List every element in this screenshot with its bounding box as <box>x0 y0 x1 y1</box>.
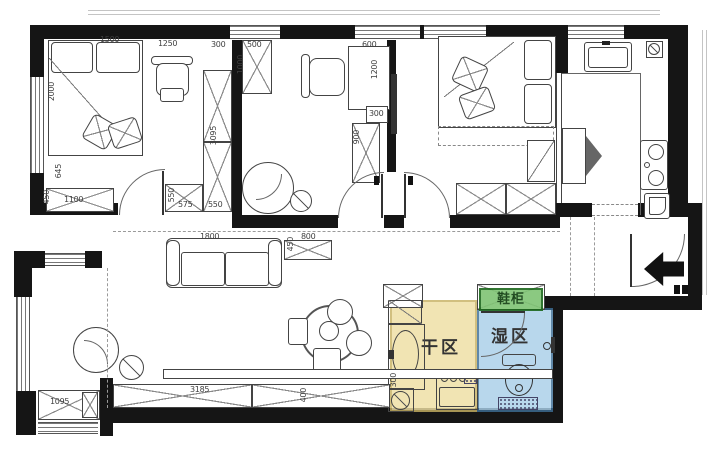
dimension-label: 450 <box>43 190 51 204</box>
dimension-label: 1800 <box>200 233 219 241</box>
dimension-label: 300 <box>211 41 225 49</box>
dimension-label: 575 <box>178 201 192 209</box>
dimension-label: 450 <box>287 237 295 251</box>
dimension-label: 600 <box>362 41 376 49</box>
dimension-label: 300 <box>390 373 398 387</box>
dimension-label: 550 <box>168 188 176 202</box>
dimension-label: 2000 <box>48 82 56 101</box>
dimension-label: 500 <box>247 41 261 49</box>
dimension-label: 3185 <box>190 386 209 394</box>
dimension-label: 3095 <box>210 126 218 145</box>
dimension-label: 1000 <box>237 55 245 74</box>
floor-plan: 鞋柜 干区 湿区 <box>0 0 719 458</box>
dimension-label: 645 <box>55 164 63 178</box>
dimension-label: 1095 <box>50 398 69 406</box>
dimension-label: 1250 <box>158 40 177 48</box>
dimension-label: 300 <box>369 110 383 118</box>
dimension-label: 1200 <box>371 60 379 79</box>
dimension-label: 900 <box>353 130 361 144</box>
dimension-layer: 1500125030050060020001000120030953009006… <box>0 0 719 458</box>
dimension-label: 550 <box>208 201 222 209</box>
dimension-label: 1100 <box>64 196 83 204</box>
dimension-label: 400 <box>300 388 308 402</box>
dimension-label: 800 <box>301 233 315 241</box>
dimension-label: 1500 <box>100 36 119 44</box>
